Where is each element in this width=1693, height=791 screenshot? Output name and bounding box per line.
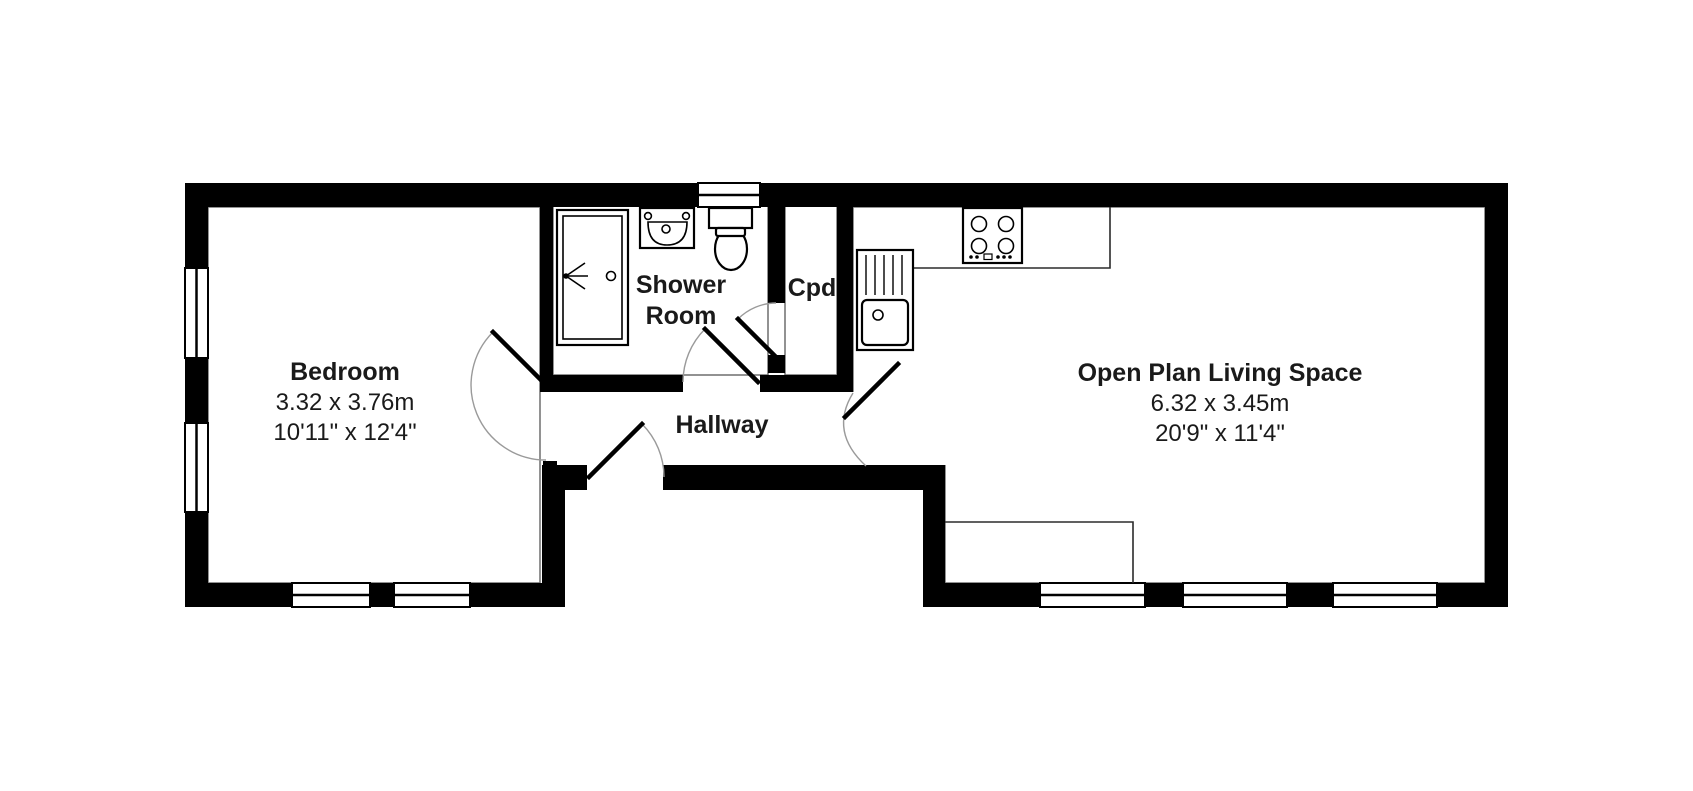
plan-background (0, 0, 1693, 791)
east-wall (1485, 183, 1508, 607)
bedroom-dims-metric: 3.32 x 3.76m (276, 389, 415, 416)
shower-room-label-line1: Shower (636, 271, 727, 299)
toilet-cistern (709, 208, 752, 228)
bedroom-south-window-1 (292, 583, 370, 607)
hallway-label: Hallway (675, 411, 768, 439)
open-plan-dims-metric: 6.32 x 3.45m (1151, 390, 1290, 417)
cupboard-label: Cpd (788, 274, 837, 302)
shower-enclosure (557, 210, 628, 345)
north-wall (185, 183, 1508, 207)
bedroom-west-window-2 (185, 423, 208, 512)
living-west-wall (923, 490, 945, 583)
shower-room-label-line2: Room (646, 302, 717, 330)
entrance-door-stop (543, 461, 557, 467)
bathroom-sink (640, 208, 694, 248)
bedroom-east-wall (540, 205, 553, 385)
floor-plan: Bedroom 3.32 x 3.76m 10'11" x 12'4" Show… (0, 0, 1693, 791)
shower-room-south-wall (540, 375, 683, 392)
bedroom-south-wall (185, 583, 565, 607)
porch-west-wall (542, 465, 565, 607)
west-wall (185, 183, 208, 607)
bedroom-label: Bedroom (290, 358, 400, 386)
cupboard-west-wall (768, 205, 785, 303)
hallway-south-wall (663, 465, 945, 490)
sink-bowl (862, 300, 908, 345)
north-window (698, 183, 760, 207)
bedroom-dims-imperial: 10'11" x 12'4" (273, 419, 416, 446)
living-south-window-1 (1040, 583, 1145, 607)
toilet-seat-hinge (716, 228, 745, 236)
bedroom-west-window-1 (185, 268, 208, 358)
open-plan-dims-imperial: 20'9" x 11'4" (1155, 420, 1285, 447)
kitchen-sink-drainer (857, 250, 913, 350)
bedroom-south-window-2 (394, 583, 470, 607)
kitchen-west-wall (837, 205, 853, 392)
living-south-window-2 (1183, 583, 1287, 607)
hob (963, 208, 1022, 263)
hallway-south-wall-stub (565, 465, 587, 490)
open-plan-label: Open Plan Living Space (1078, 359, 1363, 387)
living-south-window-3 (1333, 583, 1437, 607)
